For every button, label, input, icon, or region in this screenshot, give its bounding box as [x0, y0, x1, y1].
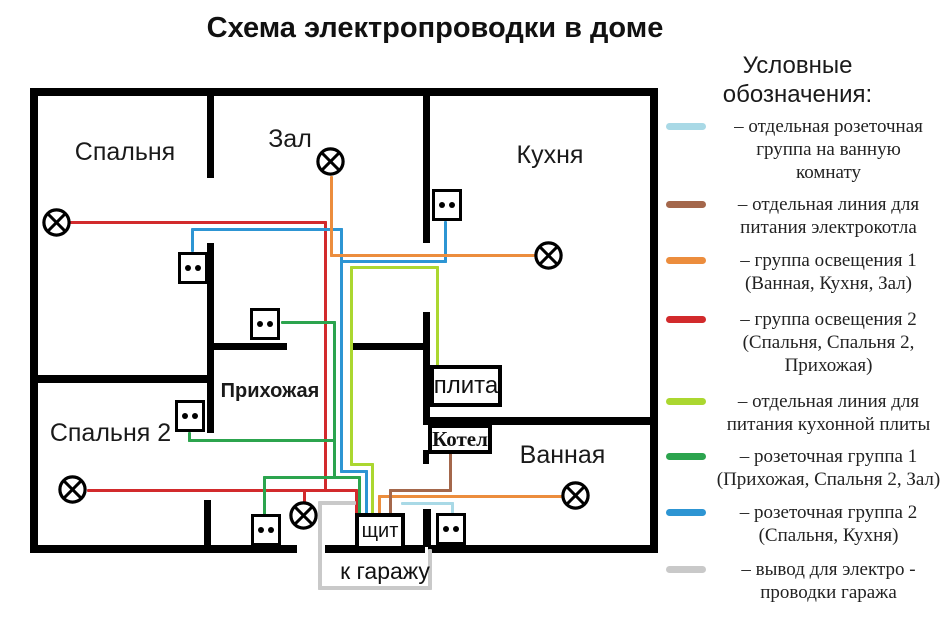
legend-swatch-orange — [666, 257, 706, 264]
electrical-panel-box: щит — [355, 513, 405, 550]
wire-garage-line — [320, 501, 356, 505]
wire-stove-line — [350, 266, 439, 269]
legend-item-label: – группа освещения 1 (Ванная, Кухня, Зал… — [716, 249, 945, 295]
legend-item-label: – отдельная линия для питания электрокот… — [716, 193, 945, 239]
socket-pin — [258, 527, 264, 533]
legend-item-lighting-group-2: – группа освещения 2 (Спальня, Спальня 2… — [650, 308, 945, 378]
boiler-label: Котел — [432, 427, 488, 452]
legend-item-socket-group-2: – розеточная группа 2 (Спальня, Кухня) — [650, 501, 945, 547]
wire-socket-group-1 — [358, 476, 361, 516]
wall-prihozhaya-top-right — [352, 343, 425, 350]
socket-pin — [257, 321, 263, 327]
socket-pin — [185, 265, 191, 271]
legend-item-garage-line: – вывод для электро - проводки гаража — [650, 558, 945, 604]
legend-swatch-red — [666, 316, 706, 323]
socket-icon-prihozhaya-upper — [250, 308, 280, 340]
wall-exterior-top — [30, 88, 658, 96]
legend-swatch-blue — [666, 509, 706, 516]
wire-socket-group-1 — [263, 476, 266, 515]
legend-item-lighting-group-1: – группа освещения 1 (Ванная, Кухня, Зал… — [650, 249, 945, 295]
wire-socket-group-1 — [333, 321, 336, 479]
socket-icon-kuhnya — [432, 189, 462, 221]
boiler-box: Котел — [428, 424, 492, 454]
room-label-spalnya2: Спальня 2 — [48, 419, 173, 448]
wire-boiler-line — [389, 489, 452, 492]
lamp-icon-kuhnya — [534, 241, 563, 270]
socket-pin — [267, 321, 273, 327]
legend-item-label: – группа освещения 2 (Спальня, Спальня 2… — [716, 308, 945, 378]
lamp-icon-spalnya2 — [58, 475, 87, 504]
legend-item-label: – розеточная группа 1 (Прихожая, Спальня… — [716, 445, 945, 491]
socket-icon-vannaya — [436, 513, 466, 545]
legend-swatch-light-blue — [666, 123, 706, 130]
legend-item-stove-line: – отдельная линия для питания кухонной п… — [650, 390, 945, 436]
wall-spalnya2-prihozhaya — [204, 500, 211, 553]
legend-item-label: – отдельная линия для питания кухонной п… — [716, 390, 945, 436]
wire-lighting-group-1 — [330, 176, 333, 257]
wire-socket-group-2 — [340, 470, 368, 473]
socket-icon-spalnya — [178, 252, 208, 284]
wire-socket-group-2 — [191, 230, 194, 252]
legend-item-label: – розеточная группа 2 (Спальня, Кухня) — [716, 501, 945, 547]
socket-pin — [268, 527, 274, 533]
wire-lighting-group-2 — [87, 489, 358, 492]
socket-pin — [439, 202, 445, 208]
wire-garage-line — [318, 501, 322, 590]
room-label-kuhnya: Кухня — [500, 141, 600, 170]
wire-socket-group-1 — [281, 321, 336, 324]
stove-box: плита — [430, 365, 502, 407]
socket-pin — [449, 202, 455, 208]
socket-pin — [192, 413, 198, 419]
wall-spalnya-prihozhaya — [207, 243, 214, 433]
stove-label: плита — [434, 372, 498, 400]
socket-icon-spalnya2 — [175, 400, 205, 432]
wire-socket-group-2 — [365, 470, 368, 516]
wire-garage-line — [318, 586, 432, 590]
wall-vannaya-left-stub — [423, 509, 431, 547]
room-label-vannaya: Ванная — [515, 441, 610, 470]
wire-stove-line — [436, 266, 439, 366]
socket-pin — [453, 526, 459, 532]
wire-stove-line — [350, 266, 353, 466]
wall-zal-kuhnya — [423, 88, 430, 243]
wall-prihozhaya-kuhnya — [423, 312, 430, 422]
wall-exterior-bottom — [428, 545, 658, 553]
legend-item-bathroom-socket: – отдельная розеточная группа на ванную … — [650, 115, 945, 185]
legend: Условные обозначения: – отдельная розето… — [650, 52, 945, 631]
wall-exterior-left — [30, 88, 38, 553]
electrical-panel-label: щит — [362, 520, 399, 543]
legend-item-socket-group-1: – розеточная группа 1 (Прихожая, Спальня… — [650, 445, 945, 491]
socket-pin — [195, 265, 201, 271]
wire-lighting-group-1 — [378, 495, 562, 498]
room-label-prihozhaya: Прихожая — [215, 380, 325, 403]
wiring-diagram: Схема электропроводки в доме — [0, 0, 945, 631]
wall-prihozhaya-top-left — [211, 343, 287, 350]
legend-swatch-gray — [666, 566, 706, 573]
wire-socket-group-2 — [191, 228, 343, 231]
wire-boiler-line — [449, 452, 452, 492]
legend-swatch-brown — [666, 201, 706, 208]
wall-spalnya-zal — [207, 88, 214, 178]
wire-socket-group-2 — [340, 228, 343, 473]
socket-icon-prihozhaya-lower — [251, 514, 281, 546]
wire-socket-group-1 — [188, 439, 336, 442]
lamp-icon-spalnya — [42, 208, 71, 237]
wire-lighting-group-1 — [330, 254, 535, 257]
wire-bathroom-socket-line — [401, 502, 454, 505]
wire-stove-line — [371, 463, 374, 516]
lamp-icon-vannaya — [561, 481, 590, 510]
wall-spalnya-spalnya2 — [30, 375, 214, 383]
wire-socket-group-2 — [340, 260, 447, 263]
page-title: Схема электропроводки в доме — [135, 12, 735, 45]
legend-item-label: – отдельная розеточная группа на ванную … — [716, 115, 945, 185]
wire-boiler-line — [389, 489, 392, 516]
lamp-icon-prihozhaya — [289, 501, 318, 530]
garage-label: к гаражу — [335, 558, 435, 585]
wire-lighting-group-2 — [324, 221, 327, 492]
room-label-zal: Зал — [250, 125, 330, 154]
socket-pin — [443, 526, 449, 532]
legend-item-label: – вывод для электро - проводки гаража — [716, 558, 945, 604]
legend-title: Условные обозначения: — [650, 52, 945, 110]
legend-item-boiler-line: – отдельная линия для питания электрокот… — [650, 193, 945, 239]
wire-socket-group-1 — [263, 476, 361, 479]
wall-exterior-bottom — [30, 545, 297, 553]
wire-lighting-group-2 — [70, 221, 327, 224]
socket-pin — [182, 413, 188, 419]
legend-swatch-yellow-green — [666, 398, 706, 405]
room-label-spalnya: Спальня — [55, 138, 195, 167]
legend-swatch-green — [666, 453, 706, 460]
